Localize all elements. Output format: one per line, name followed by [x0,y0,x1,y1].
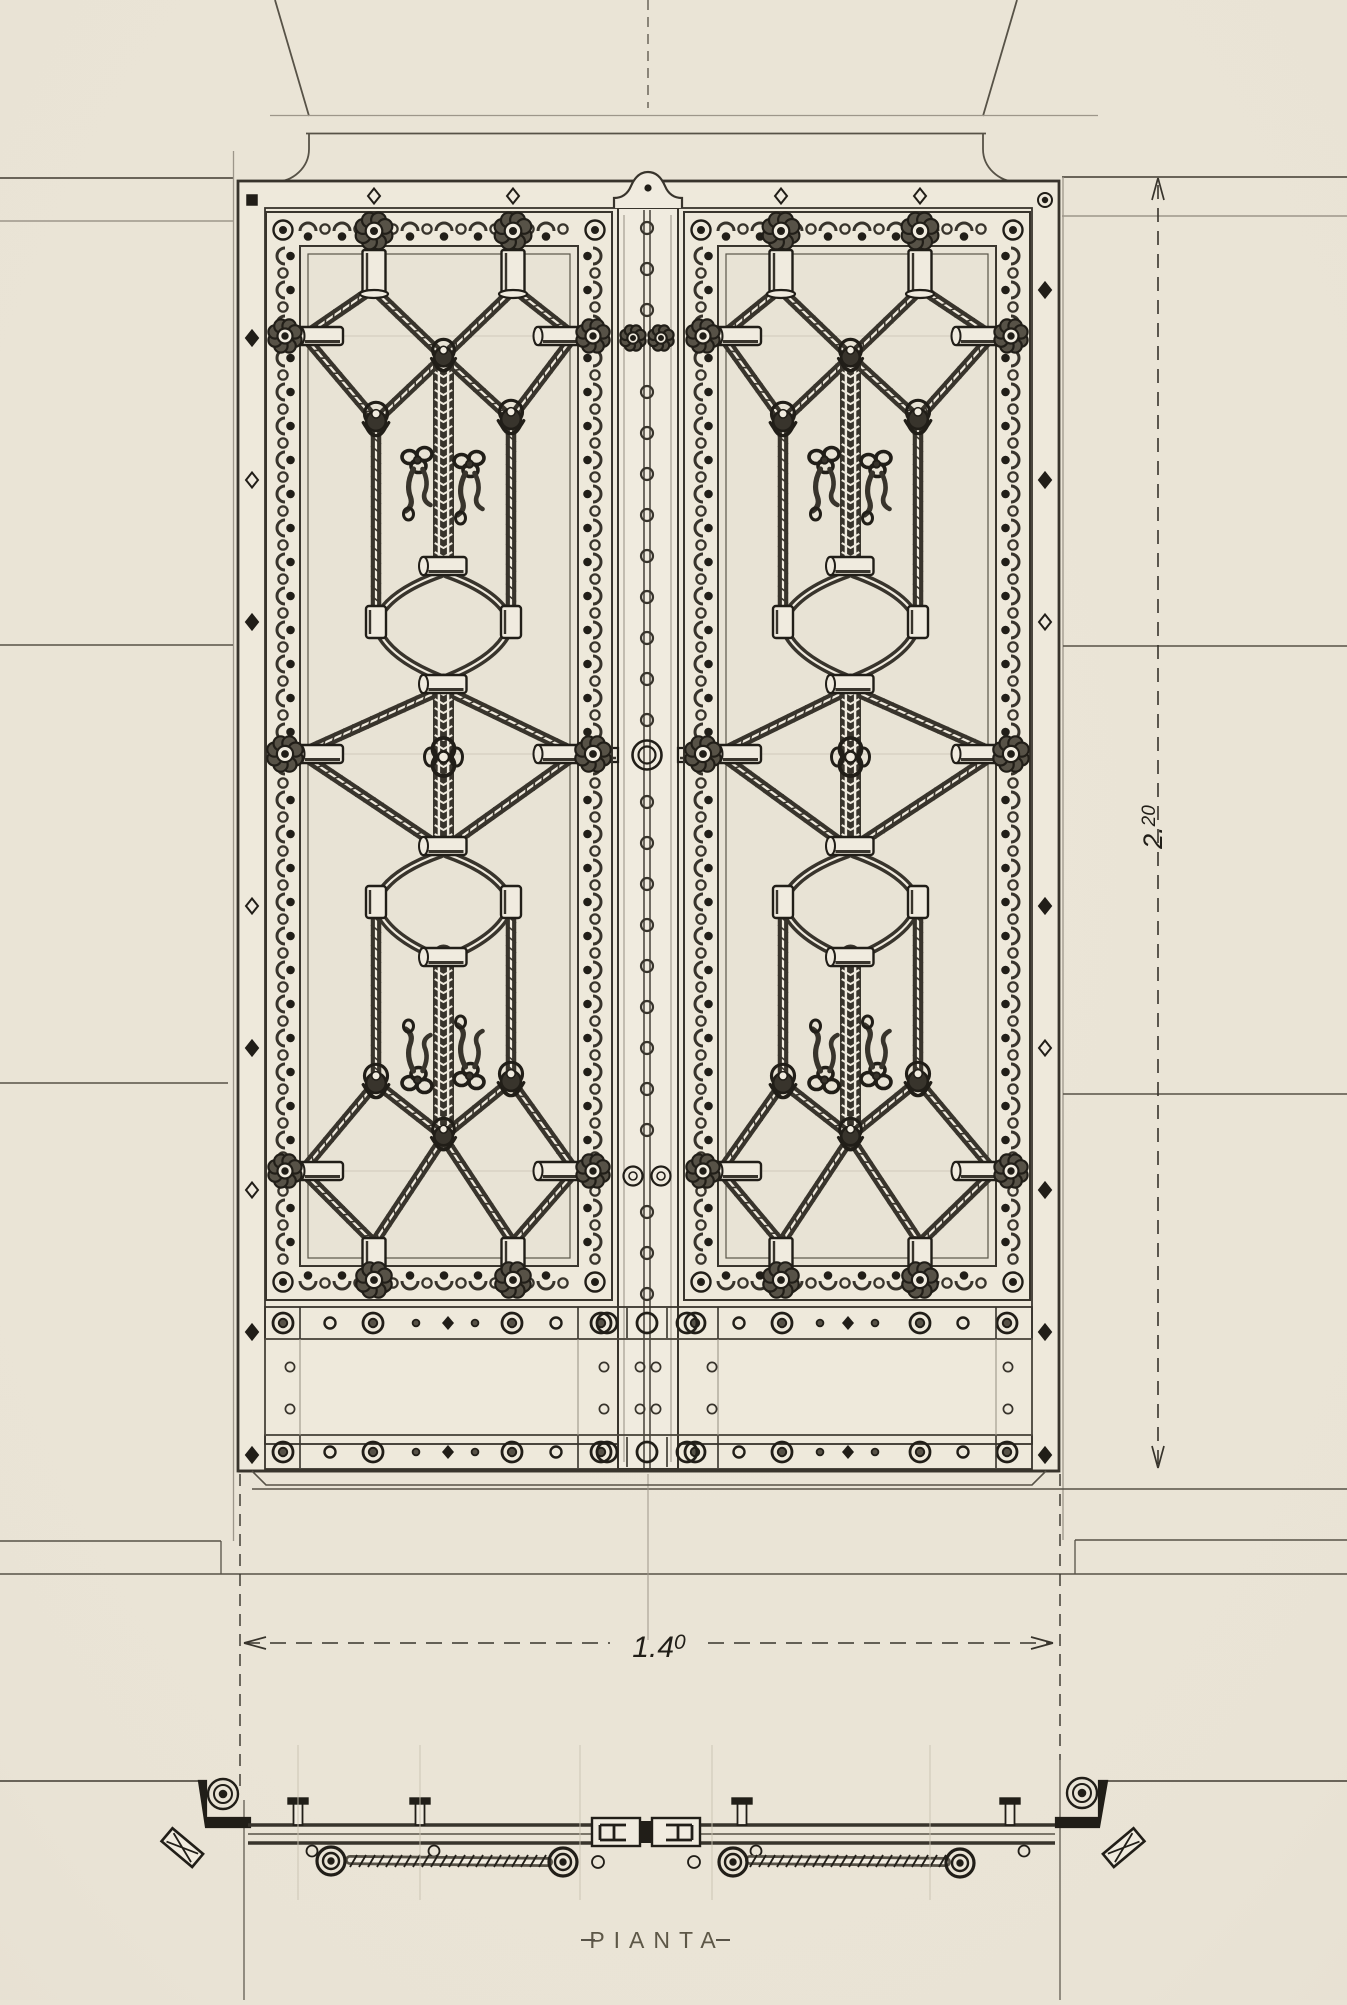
svg-text:PIANTA: PIANTA [589,1927,724,1953]
